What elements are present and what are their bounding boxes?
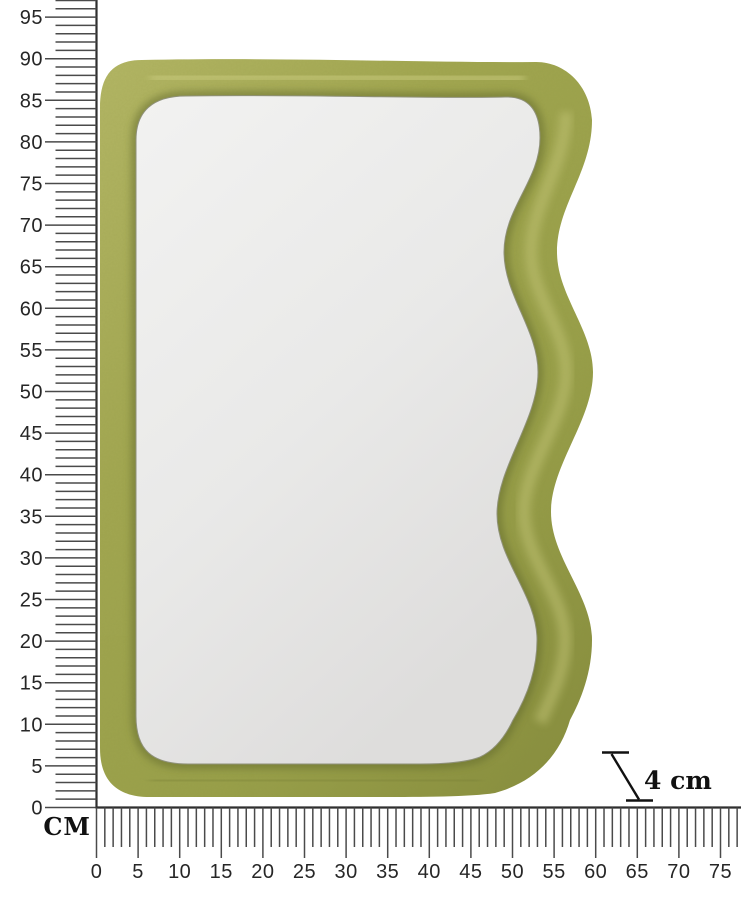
- v-tick-label: 55: [20, 340, 43, 362]
- v-tick-label: 35: [20, 506, 43, 528]
- v-tick-label: 85: [20, 90, 43, 112]
- h-tick-label: 75: [709, 861, 732, 883]
- v-tick-label: 95: [20, 7, 43, 29]
- v-tick-label: 25: [20, 590, 43, 612]
- h-tick-label: 0: [91, 861, 103, 883]
- frame-bottom-shade: [150, 780, 480, 781]
- h-tick-label: 30: [334, 861, 357, 883]
- h-tick-label: 35: [376, 861, 399, 883]
- v-tick-label: 45: [20, 423, 43, 445]
- v-tick-label: 30: [20, 548, 43, 570]
- h-tick-label: 40: [418, 861, 441, 883]
- product-dimension-image: 05101520253035404550556065707580859095 0…: [0, 0, 741, 900]
- v-tick-label: 40: [20, 465, 43, 487]
- horizontal-ruler: 051015202530354045505560657075: [91, 808, 741, 884]
- v-tick-label: 20: [20, 631, 43, 653]
- v-tick-label: 0: [31, 798, 43, 820]
- v-tick-label: 80: [20, 132, 43, 154]
- thickness-marker-diagonal: [612, 754, 640, 800]
- h-tick-label: 45: [459, 861, 482, 883]
- v-tick-label: 70: [20, 215, 43, 237]
- v-tick-label: 90: [20, 49, 43, 71]
- h-tick-label: 50: [501, 861, 524, 883]
- diagram-canvas: 05101520253035404550556065707580859095 0…: [0, 0, 741, 900]
- v-tick-label: 5: [31, 756, 43, 778]
- h-tick-label: 5: [132, 861, 144, 883]
- v-tick-label: 10: [20, 714, 43, 736]
- v-tick-label: 50: [20, 382, 43, 404]
- h-tick-label: 25: [293, 861, 316, 883]
- h-tick-label: 10: [168, 861, 191, 883]
- h-tick-label: 65: [626, 861, 649, 883]
- h-tick-label: 15: [210, 861, 233, 883]
- vertical-ruler: 05101520253035404550556065707580859095: [20, 0, 97, 820]
- vertical-ruler-ticks: 05101520253035404550556065707580859095: [20, 0, 97, 819]
- mirror-illustration: [80, 40, 620, 830]
- thickness-label: 4 cm: [644, 766, 712, 795]
- v-tick-label: 75: [20, 174, 43, 196]
- h-tick-label: 20: [251, 861, 274, 883]
- thickness-annotation: 4 cm: [602, 753, 712, 801]
- unit-label: CM: [43, 812, 91, 841]
- h-tick-label: 55: [542, 861, 565, 883]
- v-tick-label: 60: [20, 298, 43, 320]
- v-tick-label: 65: [20, 257, 43, 279]
- frame-top-highlight: [150, 76, 525, 79]
- h-tick-label: 60: [584, 861, 607, 883]
- h-tick-label: 70: [667, 861, 690, 883]
- mirror-glass: [136, 96, 540, 764]
- horizontal-ruler-ticks: 051015202530354045505560657075: [91, 808, 737, 884]
- v-tick-label: 15: [20, 673, 43, 695]
